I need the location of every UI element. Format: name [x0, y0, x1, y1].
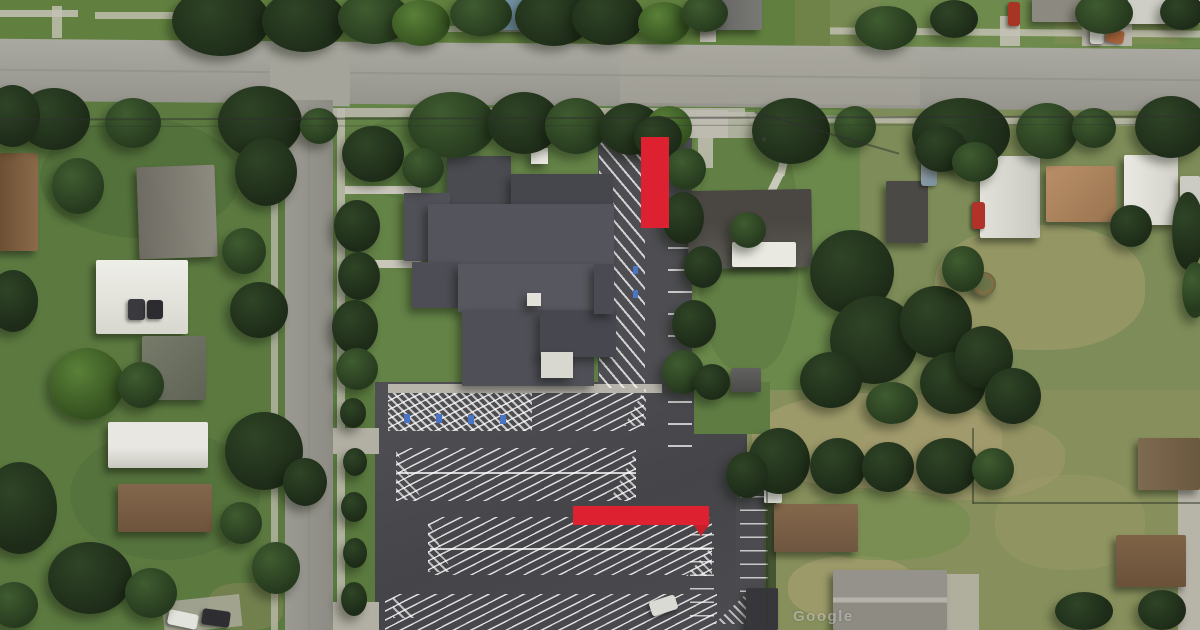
red-marker-vertical [641, 137, 669, 228]
satellite-map: Google [0, 0, 1200, 630]
map-watermark: Google [793, 608, 854, 625]
layer-annotations [0, 0, 1200, 630]
red-marker-tab [694, 525, 709, 536]
red-marker-horizontal [573, 506, 709, 525]
